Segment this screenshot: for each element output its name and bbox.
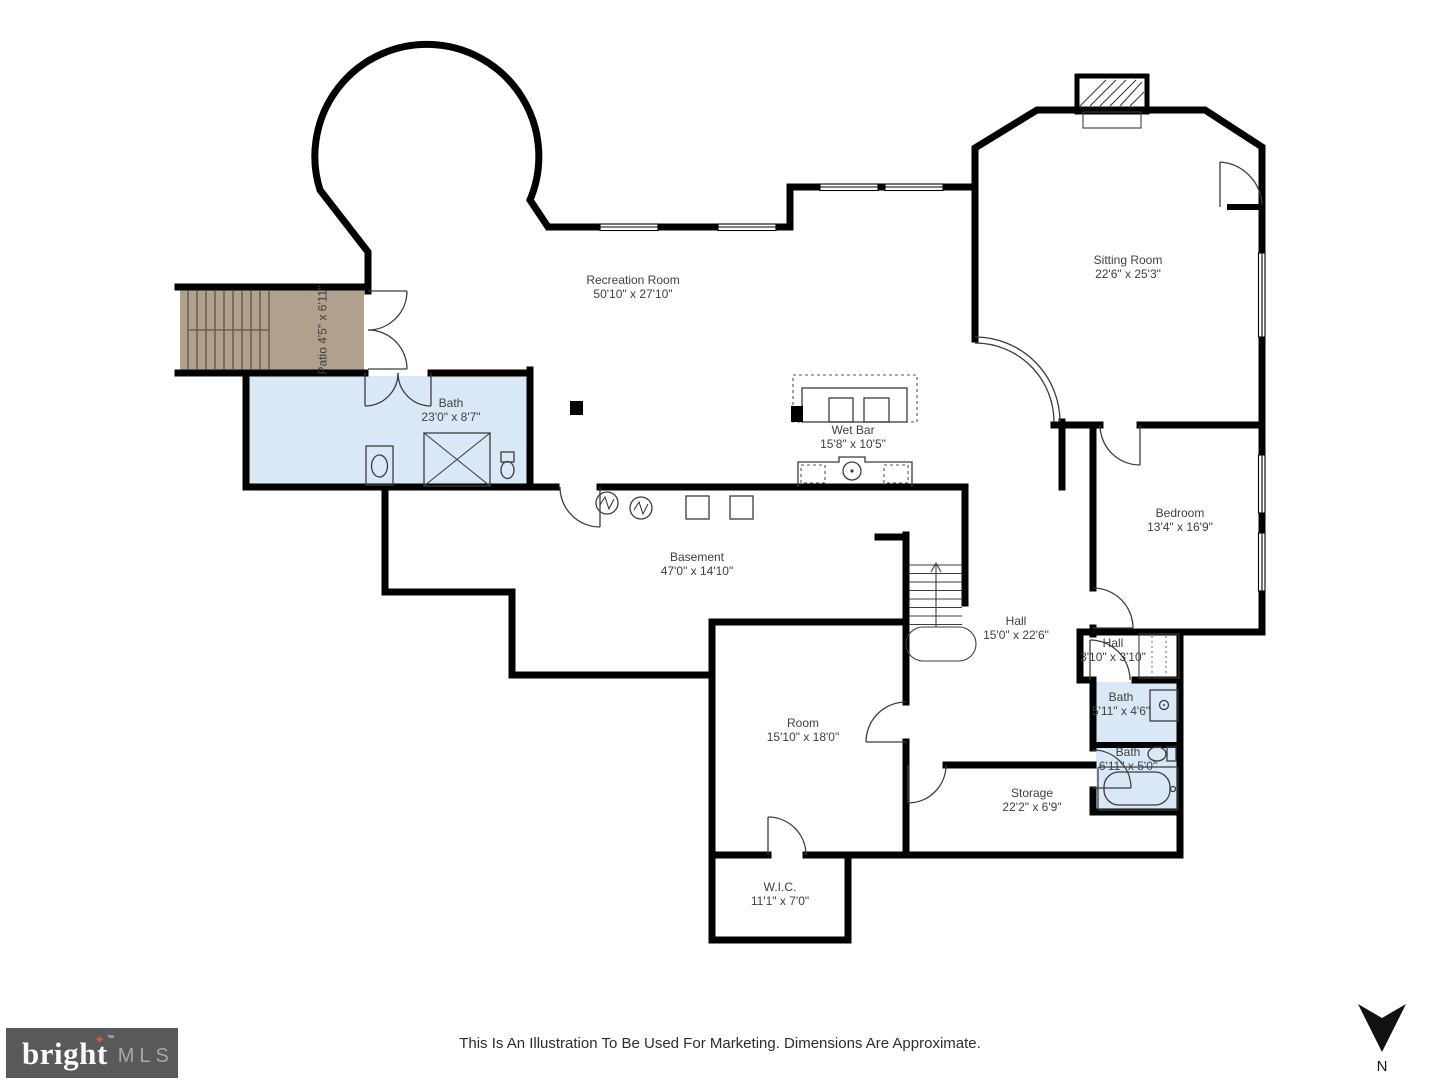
basement-door	[560, 487, 600, 527]
logo-mls-text: MLS	[118, 1046, 174, 1066]
room-name: Sitting Room	[1094, 254, 1163, 268]
room-dims: 13'4" x 16'9"	[1147, 521, 1213, 535]
logo-star-icon: ✦	[94, 1033, 105, 1046]
room-name: W.I.C.	[751, 881, 809, 895]
room-dims: 15'0" x 22'6"	[983, 629, 1049, 643]
room-dims: 23'0" x 8'7"	[421, 411, 480, 425]
north-label: N	[1377, 1058, 1388, 1075]
room-name: Hall	[983, 615, 1049, 629]
room-dims: 4'5" x 6'11"	[315, 286, 329, 344]
column	[570, 401, 583, 415]
room-label-bedroom: Bedroom 13'4" x 16'9"	[1147, 507, 1213, 534]
stair-rail-curve	[906, 627, 976, 661]
room-name: Bedroom	[1147, 507, 1213, 521]
room-label-sitting-room: Sitting Room 22'6" x 25'3"	[1094, 254, 1163, 281]
marketing-disclaimer: This Is An Illustration To Be Used For M…	[0, 1035, 1440, 1052]
room-name: Recreation Room	[586, 274, 679, 288]
bath-main-fill	[248, 376, 530, 485]
room-label-storage: Storage 22'2" x 6'9"	[1002, 787, 1061, 814]
room-name: Room	[767, 717, 840, 731]
column	[791, 406, 803, 422]
patio-french-door-1	[368, 291, 407, 330]
room-dims: 22'2" x 6'9"	[1002, 801, 1061, 815]
patio-french-door-2	[368, 330, 407, 369]
room-dims: 6'11" x 5'0"	[1099, 760, 1157, 774]
room-label-basement: Basement 47'0" x 14'10"	[661, 551, 734, 578]
room-dims: 47'0" x 14'10"	[661, 565, 734, 579]
room-name: Storage	[1002, 787, 1061, 801]
room-label-hall-small: Hall 3'10" x 3'10"	[1080, 637, 1146, 664]
room-dims: 15'8" x 10'5"	[820, 438, 886, 452]
room-dims: 50'10" x 27'10"	[586, 288, 679, 302]
hvac-unit-icon	[730, 496, 753, 519]
room-label-hall: Hall 15'0" x 22'6"	[983, 615, 1049, 642]
floor-plan-drawing	[0, 0, 1440, 1080]
basement-equipment	[570, 401, 753, 519]
wet-bar-upper-cabinets	[793, 375, 917, 422]
room-name: Wet Bar	[820, 424, 886, 438]
storage-door	[908, 765, 946, 803]
sitting-room-wall	[975, 110, 1262, 632]
room-name: Bath	[1099, 746, 1157, 760]
room-label-wet-bar: Wet Bar 15'8" x 10'5"	[820, 424, 886, 451]
bedroom-door	[1093, 588, 1133, 628]
room-dims: 15'10" x 18'0"	[767, 731, 840, 745]
room-dims: 11'1" x 7'0"	[751, 895, 809, 909]
room-name: Patio	[315, 347, 329, 374]
room-label-bath-small-2: Bath 6'11" x 5'0"	[1099, 746, 1157, 773]
room-door	[866, 702, 906, 742]
room-name: Bath	[421, 397, 480, 411]
room-dims: 3'10" x 3'10"	[1080, 651, 1146, 665]
room-name: Basement	[661, 551, 734, 565]
room-name: Hall	[1080, 637, 1146, 651]
brightmls-logo: bright ✦ ™ MLS	[6, 1028, 178, 1078]
room-label-recreation-room: Recreation Room 50'10" x 27'10"	[586, 274, 679, 301]
room-label-bath-main: Bath 23'0" x 8'7"	[421, 397, 480, 424]
logo-trademark: ™	[107, 1035, 114, 1042]
room-label-patio: Patio 4'5" x 6'11"	[316, 286, 330, 375]
wet-bar-base	[802, 388, 907, 422]
sitting-bedroom-door	[1100, 425, 1140, 465]
wic-door	[768, 817, 806, 855]
curved-wall	[975, 337, 1060, 422]
fireplace	[1077, 76, 1147, 128]
basement-outline-wall	[385, 487, 712, 675]
room-name: Bath	[1092, 691, 1150, 705]
room-label-wic: W.I.C. 11'1" x 7'0"	[751, 881, 809, 908]
room-label-bath-small-1: Bath 5'11" x 4'6"	[1092, 691, 1150, 718]
room-dims: 22'6" x 25'3"	[1094, 268, 1163, 282]
sitting-closet-door	[1220, 162, 1262, 207]
room-dims: 5'11" x 4'6"	[1092, 705, 1150, 719]
floor-plan-page: Recreation Room 50'10" x 27'10" Patio 4'…	[0, 0, 1440, 1080]
room-label-room: Room 15'10" x 18'0"	[767, 717, 840, 744]
hvac-unit-icon	[686, 496, 709, 519]
